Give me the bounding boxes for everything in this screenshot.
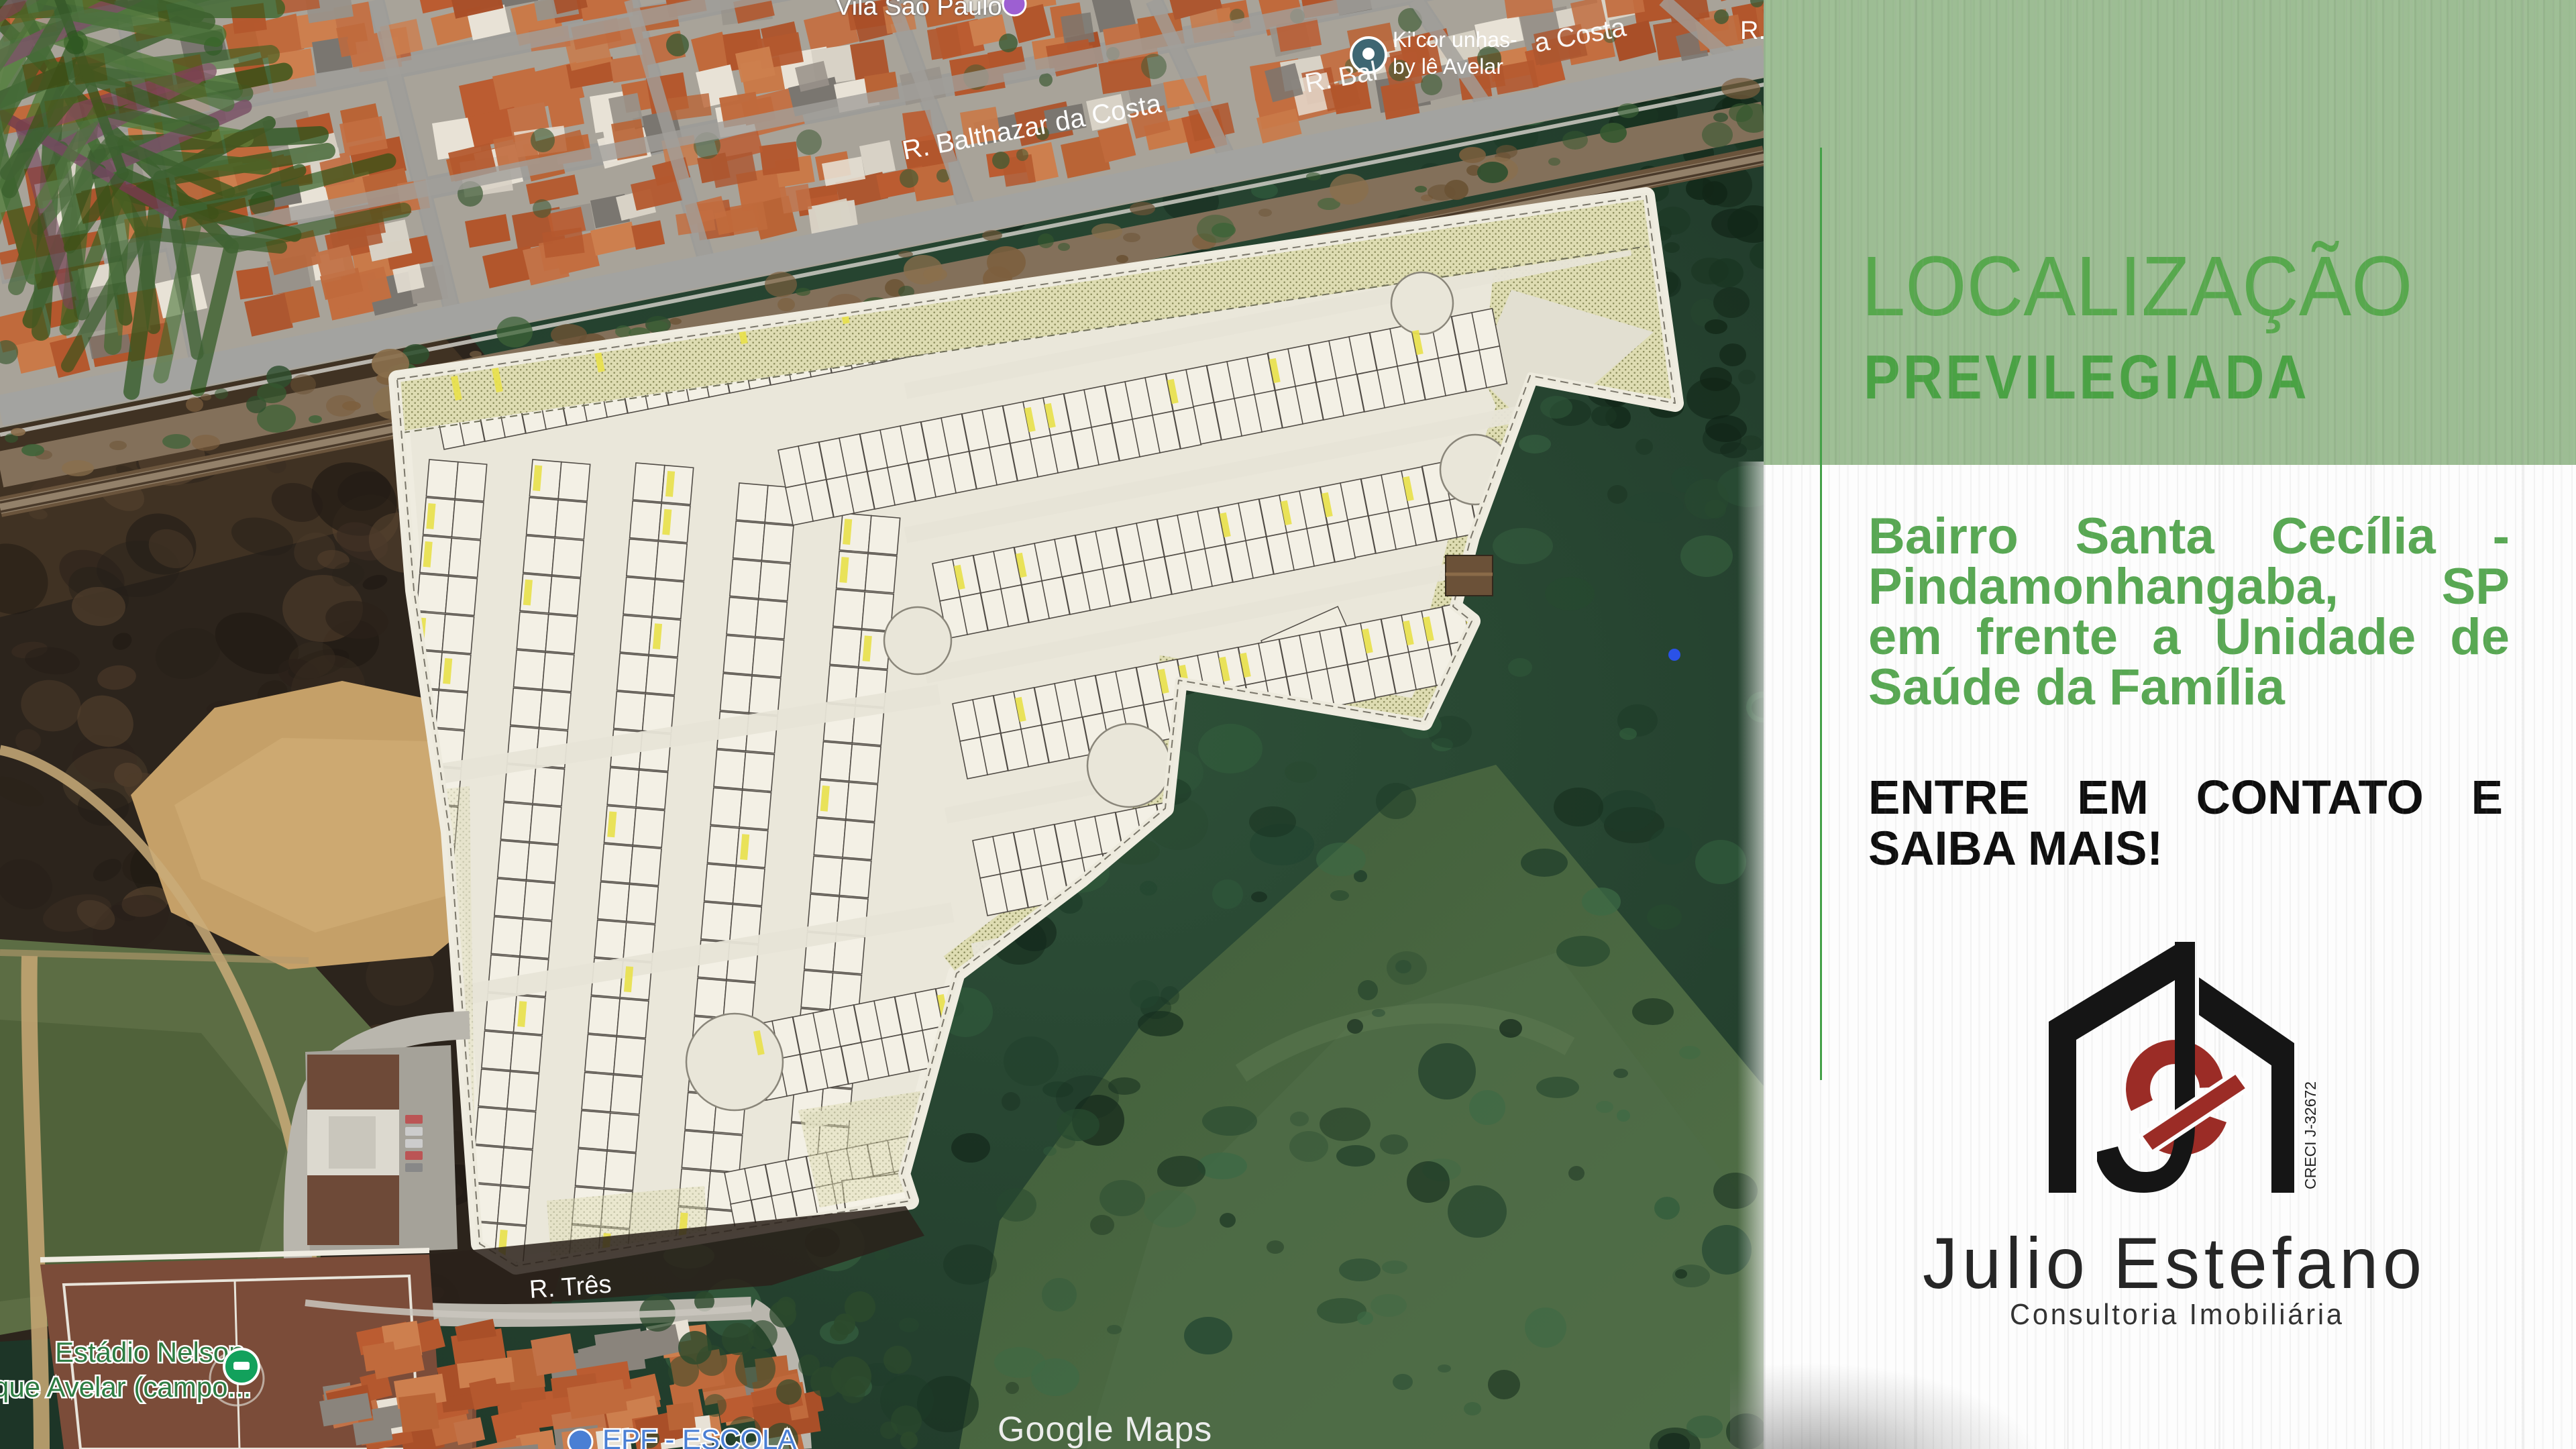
svg-text:EPF - ESCOLA: EPF - ESCOLA (602, 1424, 796, 1449)
svg-text:Estádio Nelson: Estádio Nelson (55, 1336, 245, 1368)
svg-text:Google Maps: Google Maps (998, 1410, 1212, 1449)
svg-text:Ki'cor unhas-: Ki'cor unhas- (1393, 28, 1517, 52)
svg-text:R.: R. (1740, 17, 1764, 45)
svg-text:Vila São Paulo: Vila São Paulo (835, 0, 1002, 21)
svg-text:que Avelar (campo...: que Avelar (campo... (0, 1371, 251, 1403)
svg-text:by lê Avelar: by lê Avelar (1393, 54, 1503, 78)
svg-text:CRECI J-32672: CRECI J-32672 (2302, 1081, 2319, 1189)
svg-text:R. Três: R. Três (529, 1271, 612, 1304)
